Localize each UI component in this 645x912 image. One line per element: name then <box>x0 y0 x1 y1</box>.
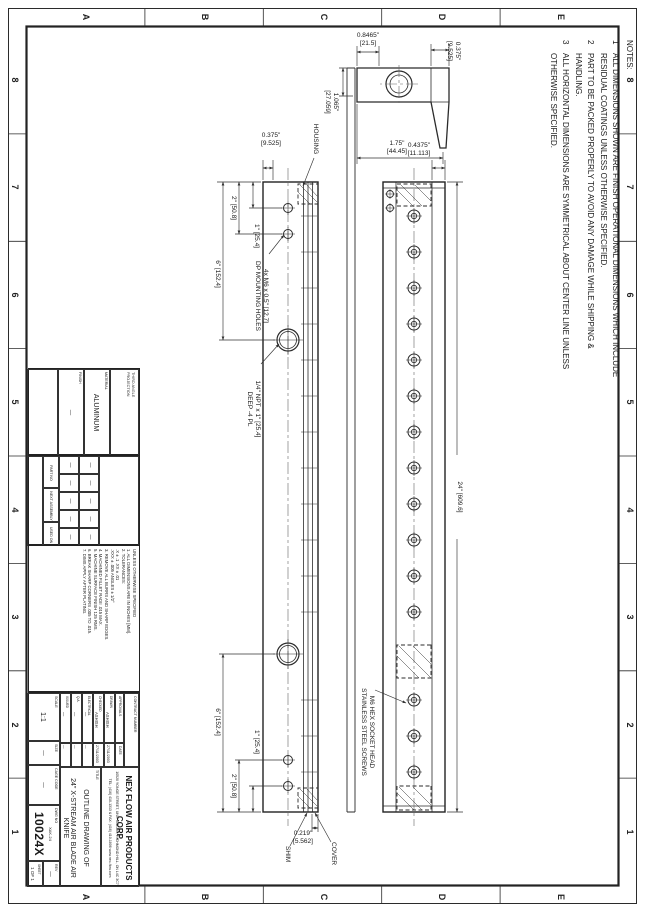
finish-value: — <box>67 370 73 455</box>
approval-row-name: — <box>83 712 88 716</box>
scale-label: SCALE <box>54 696 58 708</box>
screenshot-viewport: 8 7 6 5 4 3 2 1 8 7 6 5 4 3 2 1 E D C B … <box>0 0 645 912</box>
tolerance-notes: UNLESS OTHERWISE SPECIFIED 1. ALL DIMENS… <box>81 549 137 689</box>
zone-row: D <box>437 891 447 903</box>
zone-col: 4 <box>10 502 20 518</box>
dim-label-side-thickness: 0.375" [9.525] <box>247 132 295 148</box>
title-label: TITLE <box>95 770 99 780</box>
approval-row-name: ASHISH <box>105 712 110 728</box>
material-label: MATERIAL <box>104 372 108 390</box>
note-item: 3 ALL HORIZONTAL DIMENSIONS ARE SYMMETRI… <box>547 40 572 390</box>
next-assembly-label: NEXT ASSEMBLY <box>49 489 53 522</box>
approval-row-date: — <box>73 745 77 749</box>
finish-label: FINISH <box>78 372 82 384</box>
note-text: PART TO BE PACKED PROPERLY TO AVOID ANY … <box>572 53 597 390</box>
zone-col: 2 <box>625 717 635 733</box>
zone-col: 3 <box>625 609 635 625</box>
material-value: ALUMINUM <box>92 370 99 455</box>
application-entry: — <box>87 456 93 474</box>
application-entry: — <box>67 474 73 492</box>
projection-material-block: THIRD ANGLE PROJECTION MATERIAL ALUMINUM… <box>28 368 140 455</box>
rev-value: — <box>47 862 53 886</box>
part-no-label: PART NO <box>49 457 53 488</box>
application-entry: — <box>67 456 73 474</box>
zone-row: E <box>556 891 566 903</box>
application-block: — — — — — — — — — — PART NO NEXT ASSEMBL… <box>28 455 140 545</box>
sheet-label: SHEET <box>37 864 41 875</box>
zone-col: 3 <box>10 609 20 625</box>
approval-row-label: Q.A. <box>76 696 80 702</box>
approval-row-label: ISSUED <box>65 696 69 708</box>
dim-label-end-width-bottom: 1.065" [27.059] <box>323 70 339 134</box>
zone-row: A <box>81 891 91 903</box>
application-entry: — <box>67 492 73 510</box>
dwg-no-label: DWG NO <box>54 808 58 823</box>
model-number: XAK-24 <box>48 806 53 861</box>
zone-col: 1 <box>10 824 20 840</box>
zone-col: 1 <box>625 824 635 840</box>
zone-col: 7 <box>10 179 20 195</box>
note-text: ALL DIMENSIONS SHOWN ARE FINISH OPERATIO… <box>597 53 622 390</box>
label-housing: HOUSING <box>311 118 319 160</box>
date-header: DATE <box>118 746 122 755</box>
note-text: ALL HORIZONTAL DIMENSIONS ARE SYMMETRICA… <box>547 53 572 390</box>
end-view <box>339 44 449 812</box>
dim-label-hole1-left: 1" [25.4] <box>252 210 260 262</box>
zone-row: E <box>556 11 566 23</box>
drawing-title-line1: OUTLINE DRAWING OF <box>82 768 89 887</box>
notes-title: NOTES: <box>623 40 636 390</box>
cage-code-value: — <box>40 766 46 804</box>
zone-col: 5 <box>625 394 635 410</box>
third-angle-projection-label: THIRD ANGLE PROJECTION <box>126 372 135 397</box>
dim-label-hole2-right: 2" [50.8] <box>229 760 237 812</box>
front-view <box>375 160 463 826</box>
dim-label-front-offset: 0.4375" [11.113] <box>395 142 443 158</box>
zone-row: A <box>81 11 91 23</box>
note-item: 2 PART TO BE PACKED PROPERLY TO AVOID AN… <box>572 40 597 390</box>
zone-row: B <box>200 891 210 903</box>
company-address: 10520 YONGE STREET, UNIT 35B-220, RICHMO… <box>115 768 119 887</box>
note-number: 2 <box>572 40 597 53</box>
notes-block: NOTES: 1 ALL DIMENSIONS SHOWN ARE FINISH… <box>547 40 636 390</box>
cage-code-label: CAGE CODE <box>54 768 58 790</box>
zone-col: 5 <box>10 394 20 410</box>
company-contact: TEL: (416) 410-1313 & FAX: (416) 410-180… <box>108 768 112 887</box>
application-entry: — <box>87 528 93 546</box>
used-on-label: USED ON <box>49 523 53 546</box>
drawing-sheet: 8 7 6 5 4 3 2 1 8 7 6 5 4 3 2 1 E D C B … <box>0 0 645 912</box>
zone-row: D <box>437 11 447 23</box>
approval-row-date: 27/11/2003 <box>106 745 110 763</box>
dim-label-shim-stack: 0.219" [5.562] <box>279 830 327 846</box>
dim-label-end-height-left: 0.8465" [21.5] <box>344 32 392 48</box>
approval-row-date: — <box>62 745 66 749</box>
label-shim: SHIM <box>283 846 291 882</box>
application-entry: — <box>87 474 93 492</box>
dim-label-port-right: 6" [152.4] <box>213 694 221 750</box>
approval-row-name: — <box>61 712 66 716</box>
drawing-number: 10024X <box>32 806 46 861</box>
rev-label: REV <box>54 864 58 871</box>
sheet-value: 1 OF 1 <box>30 862 35 886</box>
application-entry: — <box>87 510 93 528</box>
zone-col: 2 <box>10 717 20 733</box>
approval-row-name: — <box>72 712 77 716</box>
side-view <box>217 158 331 846</box>
size-value: — <box>40 742 46 764</box>
dim-label-hole1-right: 1" [25.4] <box>252 716 260 768</box>
dim-label-end-width-top: 0.375" [9.525] <box>445 26 461 76</box>
label-cover: COVER <box>329 842 337 882</box>
application-entry: — <box>87 492 93 510</box>
zone-row: C <box>319 891 329 903</box>
approval-row-label: DRAWN <box>109 696 113 708</box>
approval-row-name: ASHISH <box>94 712 99 728</box>
zone-col: 8 <box>10 72 20 88</box>
label-screws: M6 HEX SOCKET HEAD STAINLESS STEEL SCREW… <box>359 664 375 800</box>
zone-row: C <box>319 11 329 23</box>
approvals-header: APPROVALS <box>118 696 122 716</box>
application-entry: — <box>67 528 73 546</box>
dim-label-hole2-left: 2" [50.8] <box>229 182 237 234</box>
contract-number-label: CONTRACT NUMBER <box>133 696 137 732</box>
drawing-title-line2: 24" X-STREAM AIR BLADE AIR KNIFE <box>62 768 76 887</box>
note-number: 3 <box>547 40 572 53</box>
zone-col: 4 <box>625 502 635 518</box>
approval-row-date: — <box>84 745 88 749</box>
title-block: CONTRACT NUMBER APPROVALS DATE DRAWNASHI… <box>28 692 140 886</box>
zone-row: B <box>200 11 210 23</box>
label-npt-ports: 1/4" NPT x 1" [25.4] DEEP -4 PL <box>245 354 261 464</box>
dim-label-overall-length: 24" [609.6] <box>455 455 463 539</box>
tolerance-block: UNLESS OTHERWISE SPECIFIED 1. ALL DIMENS… <box>28 545 140 692</box>
dim-label-port-left: 6" [152.4] <box>213 246 221 302</box>
approval-row-label: CHECKED <box>98 696 102 712</box>
scale-value: 1:1 <box>39 694 46 740</box>
approval-row-date: 27/11/2003 <box>95 745 99 763</box>
note-item: 1 ALL DIMENSIONS SHOWN ARE FINISH OPERAT… <box>597 40 622 390</box>
application-entry: — <box>67 510 73 528</box>
blade-edge-strip <box>347 68 355 812</box>
zone-col: 6 <box>10 287 20 303</box>
note-number: 1 <box>597 40 622 53</box>
size-label: SIZE <box>54 744 58 752</box>
